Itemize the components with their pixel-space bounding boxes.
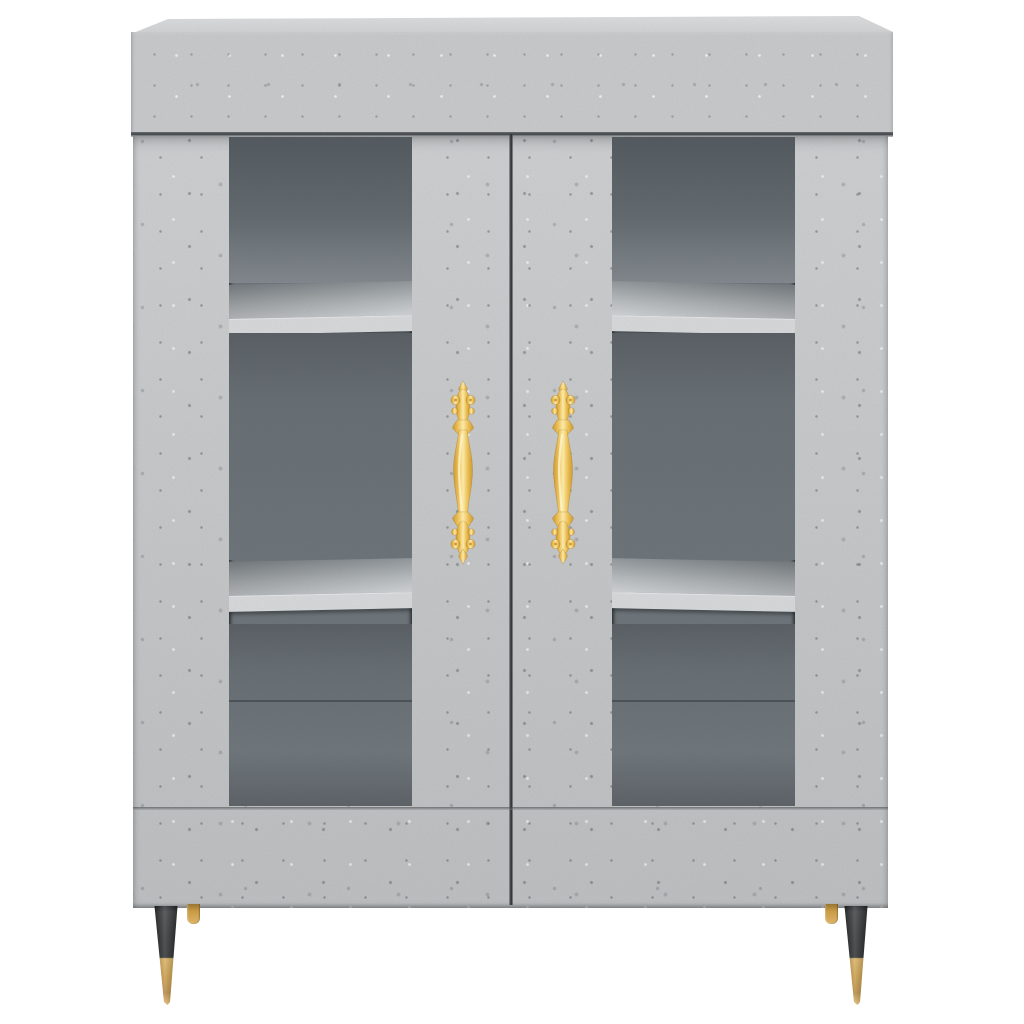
shelf-front-edge [612,592,795,612]
shelf-front-edge [229,592,412,612]
ornate-handle-icon [446,380,480,566]
back-panel-seam [229,700,412,702]
ornate-handle-icon [546,380,580,566]
left-shelf-lower [229,558,412,612]
left-interior-middle [229,333,412,560]
right-door-glass [612,137,795,806]
shelf-top-surface [229,558,412,596]
door-bottom-seam [133,807,888,810]
door-center-seam [509,134,513,905]
right-shelf-lower [612,558,795,612]
shelf-front-edge [612,315,795,335]
front-right-leg [844,906,868,1005]
back-right-leg [825,904,838,924]
body-bottom-edge [133,903,888,908]
right-interior-lower [612,624,795,806]
left-interior-lower [229,624,412,806]
right-interior-middle [612,333,795,560]
shelf-top-surface [229,281,412,319]
product-photo: Concrete grey highboard cabinet with two… [0,0,1024,1024]
left-door-glass [229,137,412,806]
right-shelf-upper [612,281,795,335]
shelf-top-surface [612,558,795,596]
shelf-top-surface [612,281,795,319]
back-left-leg [187,904,200,924]
front-left-leg [154,906,178,1005]
back-panel-seam [612,700,795,702]
right-interior-upper [612,137,795,283]
shelf-front-edge [229,315,412,335]
left-shelf-upper [229,281,412,335]
left-interior-upper [229,137,412,283]
cabinet-top-slab [131,32,893,134]
